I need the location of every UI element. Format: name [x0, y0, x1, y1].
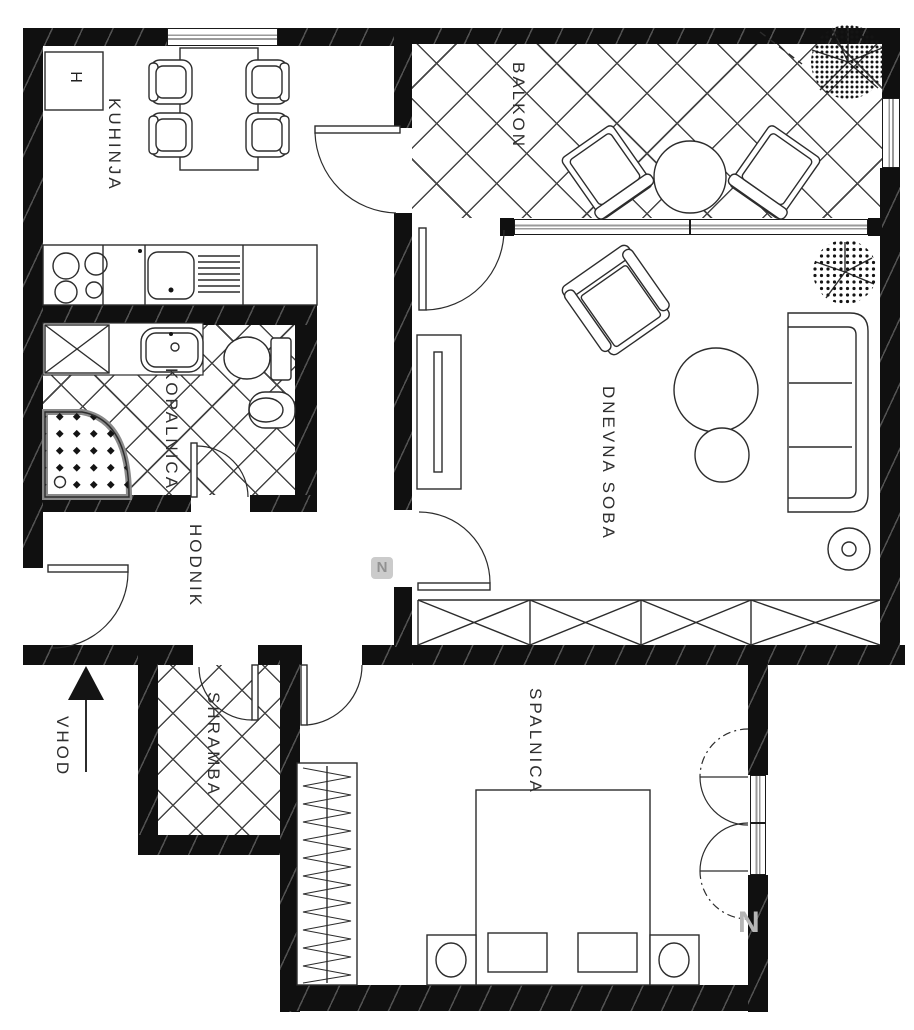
balcony-chair-right — [726, 122, 824, 222]
floor-plan: KUHINJA BALKON KOPALNICA HODNIK DNEVNA S… — [0, 0, 914, 1030]
balcony-label: BALKON — [510, 62, 527, 149]
watermark-corner: N — [738, 906, 760, 940]
bedroom-label: SPALNICA — [527, 688, 544, 795]
storage-label: SHRAMBA — [205, 692, 222, 797]
bed — [476, 790, 650, 985]
kitchen-balcony-door — [315, 126, 400, 213]
sofa — [788, 313, 868, 512]
hallway-label: HODNIK — [187, 524, 204, 608]
floor-lamp — [828, 528, 870, 570]
balcony-living-door — [419, 228, 504, 310]
dish-drainer — [198, 256, 240, 292]
entrance-label: VHOD — [54, 716, 71, 777]
tv-sideboard — [417, 335, 461, 489]
fridge-label: H — [66, 60, 84, 94]
entrance-door — [48, 565, 128, 648]
french-window-swings — [700, 729, 748, 919]
living-closet — [418, 600, 880, 645]
bidet — [249, 392, 295, 428]
living-plant-icon — [813, 240, 877, 304]
bathroom-label: KOPALNICA — [163, 368, 180, 491]
balcony-dashed-line — [760, 32, 802, 64]
shower — [45, 412, 129, 497]
bedroom-wardrobe — [297, 763, 357, 985]
bedroom-door — [301, 665, 362, 725]
washing-machine — [45, 325, 109, 373]
furniture-layer — [0, 0, 914, 1030]
coffee-tables — [674, 348, 758, 482]
washbasin — [141, 328, 203, 372]
kitchen-counter — [43, 245, 317, 305]
kitchen-label: KUHINJA — [106, 98, 123, 192]
balcony-plant-icon — [811, 25, 885, 99]
living-hall-door — [418, 512, 490, 590]
entrance-arrow-icon — [68, 666, 104, 772]
armchair — [559, 242, 675, 359]
balcony-chair-left — [558, 122, 656, 222]
watermark-badge: N — [371, 557, 393, 579]
balcony-table — [654, 141, 726, 213]
living-room-label: DNEVNA SOBA — [600, 386, 617, 541]
bathroom-door — [191, 443, 248, 497]
toilet — [224, 337, 291, 380]
